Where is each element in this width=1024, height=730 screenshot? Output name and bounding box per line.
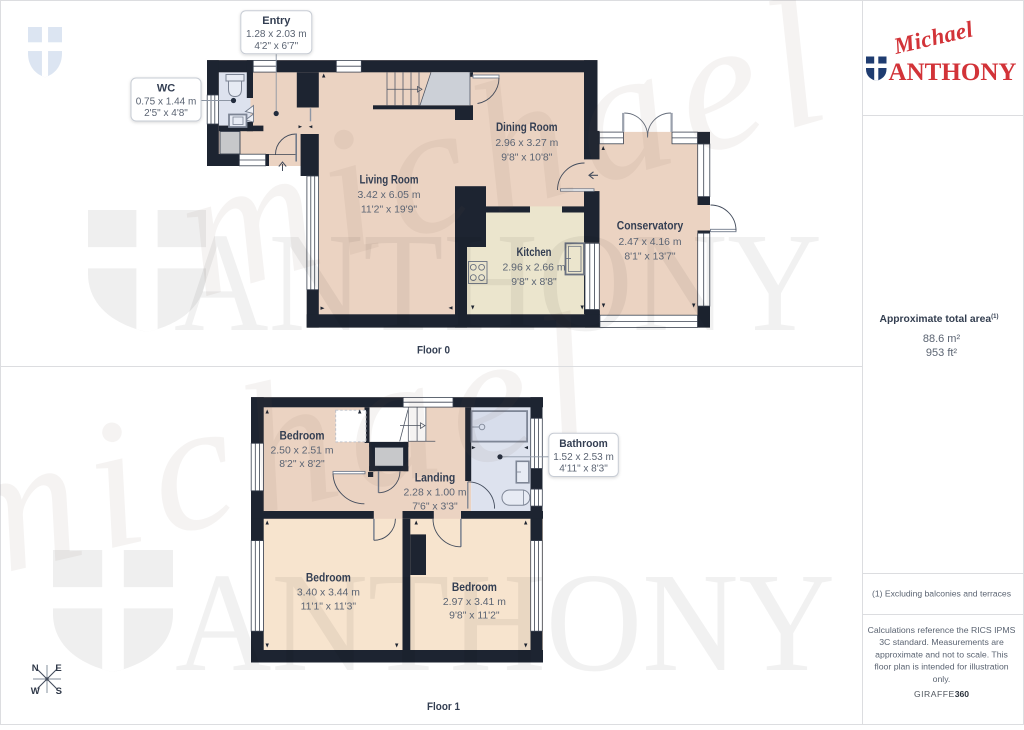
svg-text:GIRAFFE360: GIRAFFE360 (914, 689, 969, 699)
svg-text:4'11" x 8'3": 4'11" x 8'3" (559, 464, 608, 475)
svg-text:88.6 m²: 88.6 m² (923, 333, 961, 345)
svg-text:11'1" x 11'3": 11'1" x 11'3" (301, 601, 357, 612)
svg-text:only.: only. (933, 674, 951, 684)
svg-text:8'2" x 8'2": 8'2" x 8'2" (279, 459, 325, 470)
svg-text:Bedroom: Bedroom (306, 571, 351, 585)
svg-text:2.50 x 2.51 m: 2.50 x 2.51 m (271, 445, 334, 456)
svg-text:WC: WC (157, 83, 175, 95)
svg-text:9'8" x 8'8": 9'8" x 8'8" (511, 277, 557, 288)
svg-text:4'2" x 6'7": 4'2" x 6'7" (254, 41, 298, 52)
svg-text:Floor 1: Floor 1 (427, 701, 460, 713)
svg-text:3.40 x 3.44 m: 3.40 x 3.44 m (297, 588, 360, 599)
svg-text:11'2" x 19'9": 11'2" x 19'9" (361, 204, 418, 215)
svg-text:Entry: Entry (262, 15, 291, 27)
svg-text:7'6" x 3'3": 7'6" x 3'3" (412, 501, 458, 512)
svg-text:Living Room: Living Room (360, 173, 419, 187)
svg-text:Dining Room: Dining Room (496, 120, 558, 134)
svg-text:E: E (55, 663, 61, 674)
svg-text:Approximate total area(1): Approximate total area(1) (880, 314, 999, 325)
svg-text:2.96 x 3.27 m: 2.96 x 3.27 m (495, 138, 558, 149)
svg-text:2.47 x 4.16 m: 2.47 x 4.16 m (619, 237, 682, 248)
svg-text:S: S (56, 686, 62, 697)
svg-text:3C standard. Measurements are: 3C standard. Measurements are (879, 637, 1004, 647)
svg-text:2.96 x 2.66 m: 2.96 x 2.66 m (503, 263, 566, 274)
svg-text:3.42 x 6.05 m: 3.42 x 6.05 m (358, 190, 421, 201)
svg-text:Michael: Michael (891, 16, 976, 59)
svg-text:8'1" x 13'7": 8'1" x 13'7" (624, 251, 676, 262)
svg-text:Bathroom: Bathroom (559, 438, 608, 450)
svg-text:Landing: Landing (415, 471, 456, 485)
svg-text:953 ft²: 953 ft² (926, 347, 958, 359)
svg-text:Bedroom: Bedroom (452, 580, 497, 594)
svg-text:1.52 x 2.53 m: 1.52 x 2.53 m (553, 452, 614, 463)
svg-text:W: W (31, 686, 40, 697)
svg-text:Floor 0: Floor 0 (417, 345, 450, 357)
svg-text:1.28 x 2.03 m: 1.28 x 2.03 m (246, 29, 307, 40)
svg-text:Conservatory: Conservatory (617, 218, 684, 232)
svg-text:Bedroom: Bedroom (280, 428, 325, 442)
svg-text:ANTHONY: ANTHONY (889, 59, 1017, 86)
svg-text:approximate and not to scale.: approximate and not to scale. This (875, 649, 1008, 659)
svg-text:2.97 x 3.41 m: 2.97 x 3.41 m (443, 597, 506, 608)
svg-text:N: N (32, 663, 39, 674)
svg-text:0.75 x 1.44 m: 0.75 x 1.44 m (136, 97, 197, 108)
svg-text:Kitchen: Kitchen (517, 245, 552, 259)
svg-text:(1) Excluding balconies and te: (1) Excluding balconies and terraces (872, 589, 1011, 599)
svg-text:2'5" x 4'8": 2'5" x 4'8" (144, 108, 188, 119)
svg-text:2.28 x 1.00 m: 2.28 x 1.00 m (404, 488, 467, 499)
svg-text:Calculations reference the RIC: Calculations reference the RICS IPMS (868, 625, 1016, 635)
svg-text:9'8" x 11'2": 9'8" x 11'2" (449, 611, 500, 622)
svg-text:floor plan is intended for ill: floor plan is intended for illustration (874, 662, 1008, 672)
svg-text:ANTHONY: ANTHONY (175, 543, 835, 701)
svg-text:9'8" x 10'8": 9'8" x 10'8" (501, 152, 553, 163)
